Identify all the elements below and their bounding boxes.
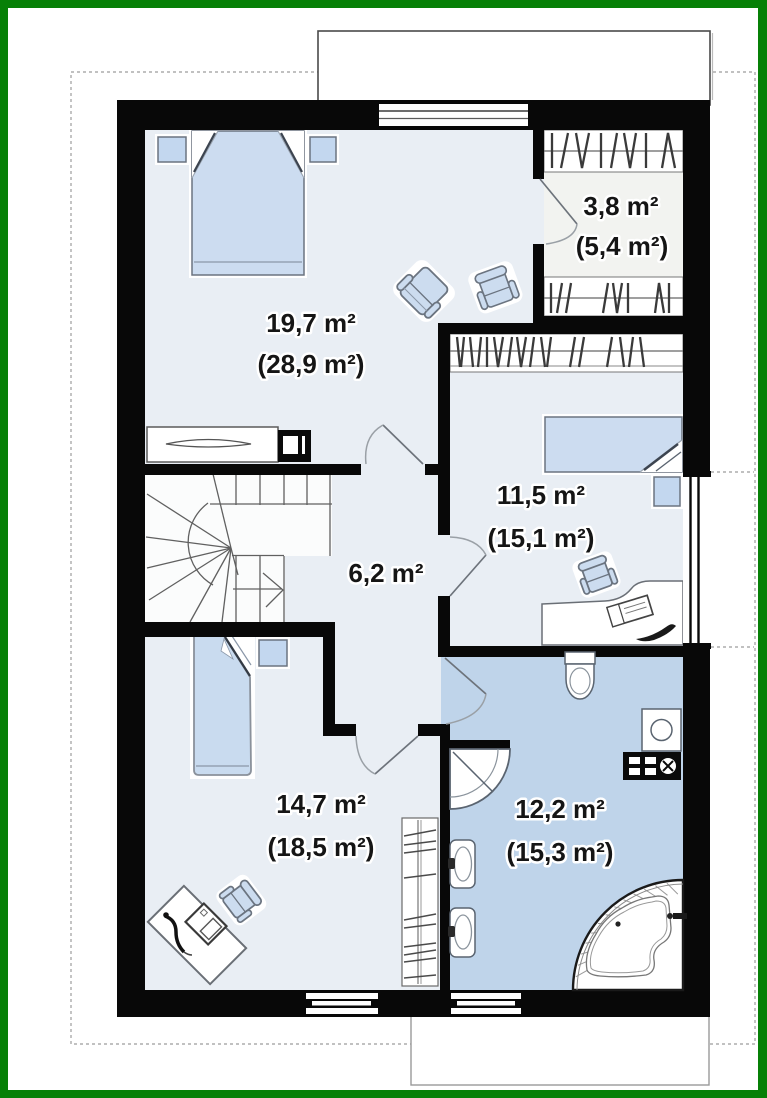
svg-text:19,7 m²: 19,7 m² xyxy=(266,308,356,338)
svg-text:(5,4 m²): (5,4 m²) xyxy=(576,231,668,261)
svg-text:(28,9 m²): (28,9 m²) xyxy=(258,349,365,379)
svg-text:(18,5 m²): (18,5 m²) xyxy=(268,832,375,862)
svg-text:11,5 m²: 11,5 m² xyxy=(497,480,586,510)
svg-text:(15,1 m²): (15,1 m²) xyxy=(488,523,595,553)
svg-text:3,8 m²: 3,8 m² xyxy=(583,191,658,221)
svg-text:12,2 m²: 12,2 m² xyxy=(515,794,605,824)
svg-text:14,7 m²: 14,7 m² xyxy=(276,789,366,819)
svg-text:(15,3 m²): (15,3 m²) xyxy=(507,837,614,867)
svg-text:6,2 m²: 6,2 m² xyxy=(348,558,423,588)
